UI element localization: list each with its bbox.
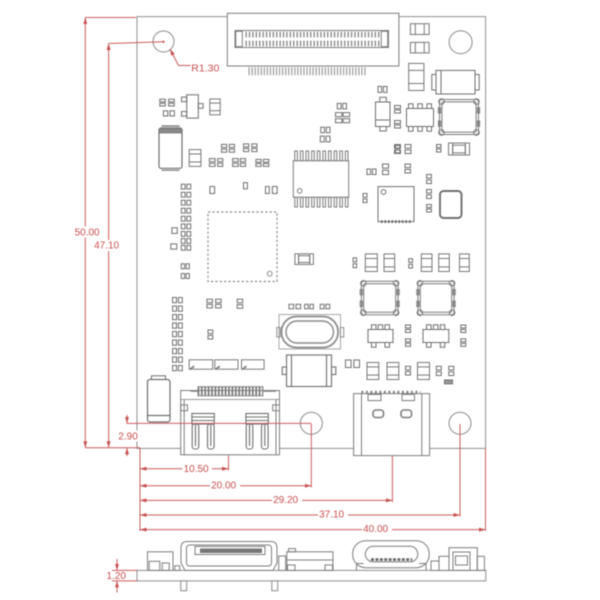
svg-text:29.20: 29.20 xyxy=(273,495,298,506)
svg-text:R1.30: R1.30 xyxy=(191,62,219,74)
svg-text:40.00: 40.00 xyxy=(363,524,388,535)
svg-text:10.50: 10.50 xyxy=(184,464,209,475)
svg-text:1.20: 1.20 xyxy=(107,571,127,582)
svg-text:37.10: 37.10 xyxy=(319,510,344,521)
svg-text:20.00: 20.00 xyxy=(211,481,236,492)
svg-text:47.10: 47.10 xyxy=(94,241,119,252)
svg-text:50.00: 50.00 xyxy=(75,228,100,239)
svg-text:2.90: 2.90 xyxy=(118,432,138,443)
